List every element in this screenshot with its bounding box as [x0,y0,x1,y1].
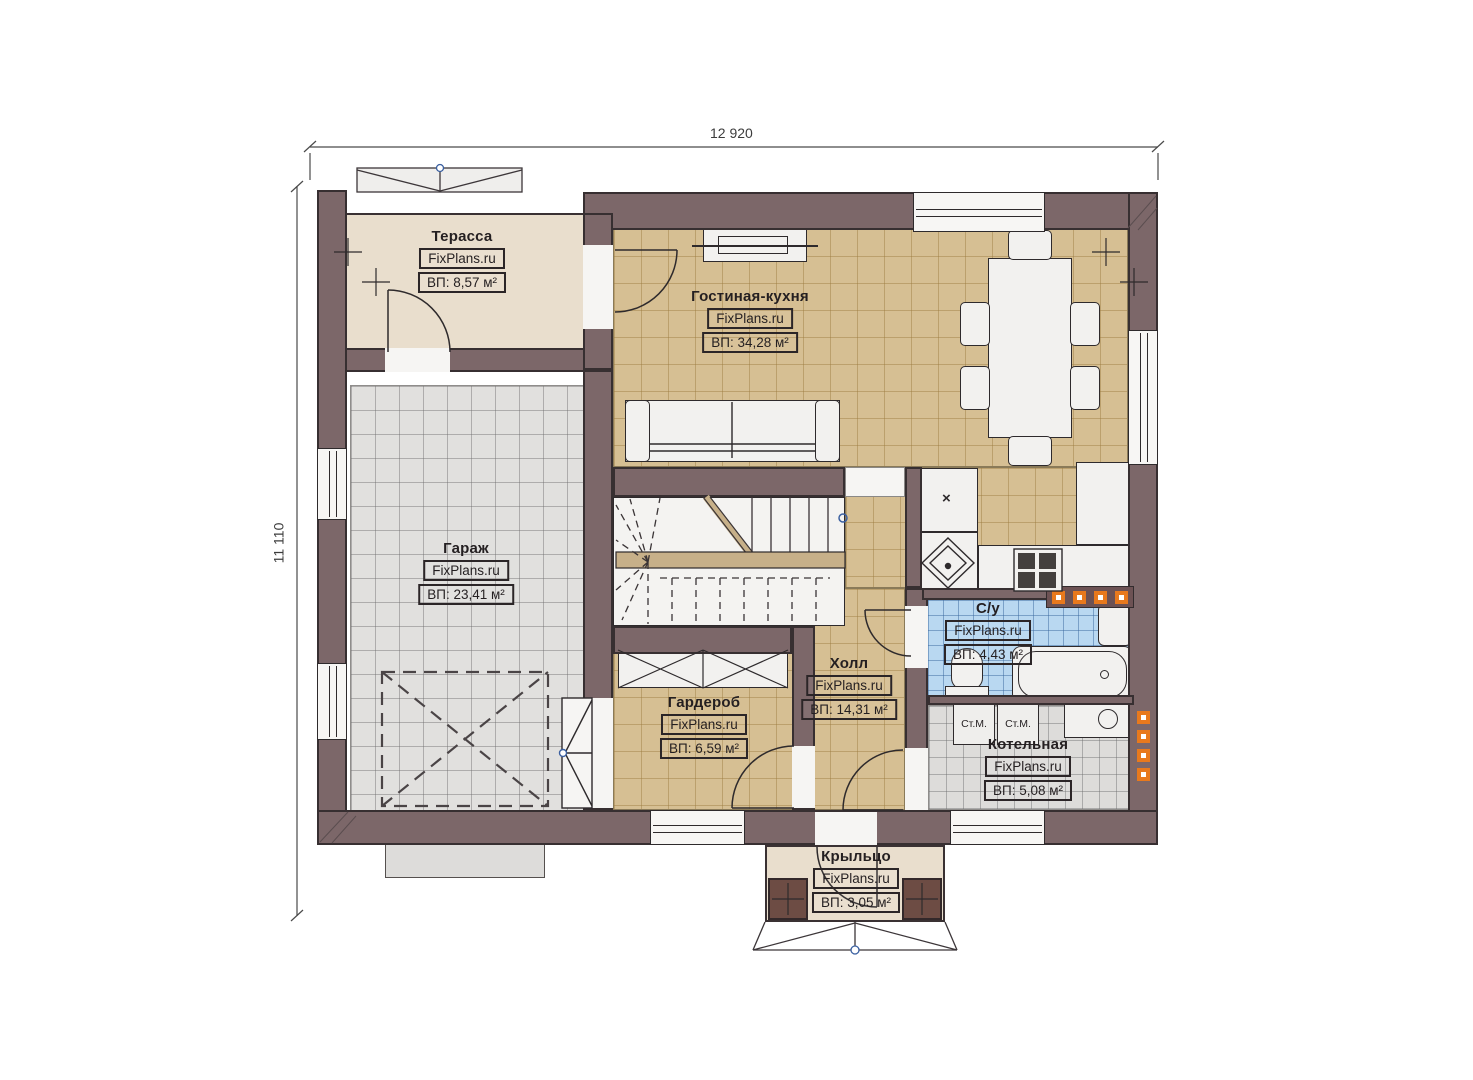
watermark: FixPlans.ru [813,868,899,889]
sofa [625,400,840,462]
fridge-cross-mark: × [942,490,951,507]
dining-chair [1008,230,1052,260]
watermark: FixPlans.ru [419,248,505,269]
dimension-height-label: 11 110 [270,523,286,564]
radiator-segment [1137,711,1150,724]
room-label-boiler: Котельная FixPlans.ru ВП: 5,08 м² [984,736,1072,801]
porch-column-left [768,878,808,920]
window-left-garage-lower [317,663,347,740]
radiator-segment [1137,730,1150,743]
room-name: Терасса [418,228,506,245]
entrance-door-opening [815,812,877,845]
wall-top [583,192,1158,230]
terrace-door-opening [385,348,450,372]
bathtub-inner [1018,651,1127,698]
terrace-roof-gable [357,165,522,193]
room-name: Крыльцо [812,848,900,865]
radiator-right-wall [1135,704,1151,788]
window-bottom-boiler [950,810,1045,845]
window-glass [953,825,1042,833]
watermark: FixPlans.ru [661,714,747,735]
boiler-door-opening [905,748,928,810]
dining-chair [1070,302,1100,346]
staircase-area [613,497,845,626]
room-label-bathroom: С/у FixPlans.ru ВП: 4,43 м² [944,600,1032,665]
sofa-armrest-left [625,400,650,462]
wardrobe-cabinet [618,650,788,688]
porch-steps [753,922,957,954]
sofa-armrest-right [815,400,840,462]
watermark: FixPlans.ru [806,675,892,696]
dining-chair [1008,436,1052,466]
room-area: ВП: 34,28 м² [702,332,798,353]
radiator-segment [1115,591,1128,604]
room-name: Холл [801,655,897,672]
window-glass [653,825,742,833]
room-label-porch: Крыльцо FixPlans.ru ВП: 3,05 м² [812,848,900,913]
radiator-segment [1094,591,1107,604]
kitchen-counter-left [918,532,978,595]
towel-radiator-bathroom [1046,586,1134,608]
radiator-segment [1137,749,1150,762]
tv-screen [718,236,788,254]
radiator-segment [1073,591,1086,604]
window-glass [916,209,1042,217]
room-label-living-kitchen: Гостиная-кухня FixPlans.ru ВП: 34,28 м² [691,288,809,353]
window-right-living [1128,330,1158,465]
dining-chair [960,366,990,410]
washing-machine-label: Ст.М. [1005,718,1031,730]
washing-machine-label: Ст.М. [961,718,987,730]
wardrobe-door-opening [792,746,815,808]
dining-chair [960,302,990,346]
room-name: Гардероб [660,694,748,711]
bathroom-door-opening [905,606,928,668]
porch-column-right [902,878,942,920]
dining-chair [1070,366,1100,410]
room-area: ВП: 4,43 м² [944,644,1032,665]
room-label-garage: Гараж FixPlans.ru ВП: 23,41 м² [418,540,514,605]
room-area: ВП: 14,31 м² [801,699,897,720]
radiator-segment [1052,591,1065,604]
garage-hall-door-opening [583,698,613,808]
terrace-living-door-opening [583,245,613,329]
wall-stairs-bottom [613,626,792,654]
dimension-left [291,181,303,921]
washbasin [1098,604,1132,646]
room-label-hall: Холл FixPlans.ru ВП: 14,31 м² [801,655,897,720]
room-name: Котельная [984,736,1072,753]
window-glass [329,666,337,737]
window-glass [1140,333,1148,462]
bathtub-drain [1100,670,1109,679]
room-area: ВП: 3,05 м² [812,892,900,913]
dining-table [988,258,1072,438]
dimension-width-label: 12 920 [710,125,753,141]
room-area: ВП: 23,41 м² [418,584,514,605]
room-name: С/у [944,600,1032,617]
wall-terrace-garage [345,348,585,372]
watermark: FixPlans.ru [707,308,793,329]
room-area: ВП: 8,57 м² [418,272,506,293]
room-label-wardrobe: Гардероб FixPlans.ru ВП: 6,59 м² [660,694,748,759]
wall-bathroom-boiler [928,695,1134,705]
window-glass [329,451,337,517]
boiler-sink [1098,709,1118,729]
room-name: Гараж [418,540,514,557]
window-left-garage-upper [317,448,347,520]
room-area: ВП: 5,08 м² [984,780,1072,801]
living-hall-threshold [845,467,905,497]
watermark: FixPlans.ru [985,756,1071,777]
watermark: FixPlans.ru [945,620,1031,641]
dimension-top [304,141,1164,180]
room-area: ВП: 6,59 м² [660,738,748,759]
wall-stairs-top [613,467,845,497]
window-top-kitchen [913,192,1045,232]
kitchen-counter-right [1076,462,1132,545]
radiator-segment [1137,768,1150,781]
window-bottom-wardrobe [650,810,745,845]
room-label-terrace: Терасса FixPlans.ru ВП: 8,57 м² [418,228,506,293]
floor-plan: × Ст.М. Ст.М. [0,0,1473,1080]
watermark: FixPlans.ru [423,560,509,581]
room-name: Гостиная-кухня [691,288,809,305]
wall-corridor-kitchen [905,467,922,588]
